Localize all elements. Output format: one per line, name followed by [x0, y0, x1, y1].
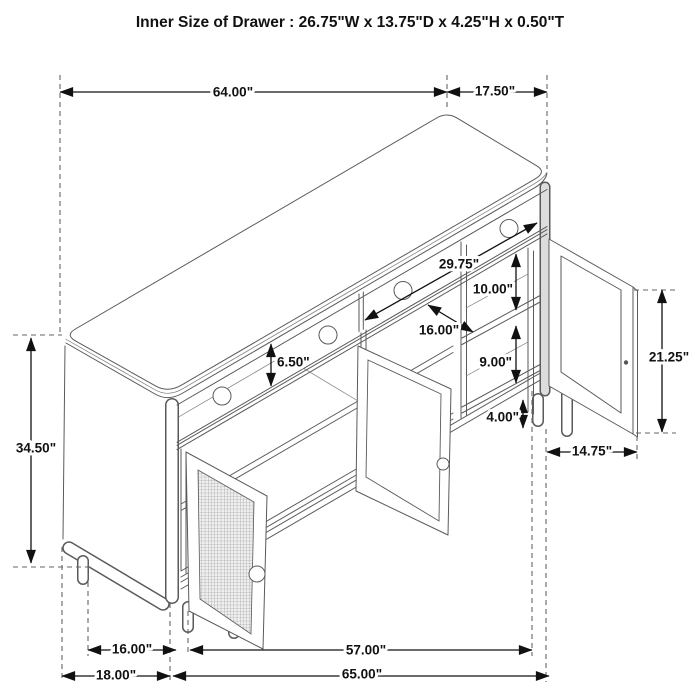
dim-top-width: 64.00": [213, 85, 253, 100]
dim-base-depth-inner: 16.00": [112, 642, 152, 657]
dim-door-width: 14.75": [572, 444, 612, 459]
dim-leg-clearance: 4.00": [486, 410, 519, 425]
dim-base-width-overall: 65.00": [342, 667, 382, 682]
drawer-knob: [394, 282, 412, 300]
door-knob: [624, 360, 628, 364]
dim-base-depth-overall: 18.00": [96, 668, 136, 683]
drawer-knob: [319, 326, 337, 344]
dim-base-width-inner: 57.00": [346, 643, 386, 658]
sideboard-dimension-drawing: Inner Size of Drawer : 26.75"W x 13.75"D…: [0, 0, 700, 700]
door-knob: [437, 458, 449, 470]
drawing-title: Inner Size of Drawer : 26.75"W x 13.75"D…: [136, 14, 565, 31]
middle-door: [356, 346, 451, 535]
dim-top-depth: 17.50": [475, 84, 515, 99]
drawer-knob: [213, 387, 231, 405]
dimension-diagram-page: Inner Size of Drawer : 26.75"W x 13.75"D…: [0, 0, 700, 700]
left-rattan-door: [186, 452, 267, 649]
dim-upper-clearance: 10.00": [473, 282, 513, 297]
dim-inner-width: 29.75": [439, 257, 479, 272]
dim-shelf-depth: 16.00": [419, 323, 459, 338]
dim-lower-clearance: 9.00": [479, 355, 512, 370]
dim-door-height: 21.25": [649, 350, 689, 365]
door-knob: [249, 566, 265, 582]
dim-overall-height: 34.50": [16, 441, 56, 456]
dim-drawer-face-height: 6.50": [277, 355, 310, 370]
